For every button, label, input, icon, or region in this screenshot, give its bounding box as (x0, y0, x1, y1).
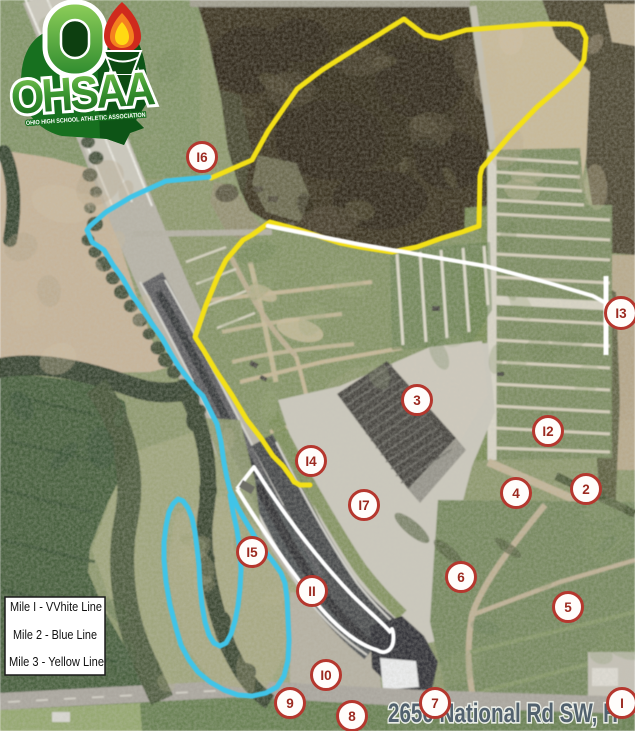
svg-text:I7: I7 (358, 498, 369, 513)
svg-text:Mile 3 - Yellow Line: Mile 3 - Yellow Line (9, 655, 104, 669)
svg-text:Mile I - VVhite Line: Mile I - VVhite Line (10, 600, 102, 614)
svg-text:I4: I4 (305, 454, 317, 469)
svg-text:9: 9 (286, 696, 294, 711)
svg-text:I6: I6 (196, 150, 208, 165)
svg-text:I3: I3 (615, 306, 627, 321)
svg-text:5: 5 (564, 600, 572, 615)
svg-text:I: I (620, 696, 624, 711)
svg-text:2: 2 (582, 482, 590, 497)
svg-text:7: 7 (431, 696, 439, 711)
svg-text:3: 3 (413, 393, 421, 408)
svg-text:I0: I0 (320, 668, 331, 683)
svg-text:I2: I2 (542, 424, 553, 439)
svg-text:6: 6 (457, 570, 465, 585)
svg-text:I5: I5 (246, 545, 258, 560)
svg-text:8: 8 (348, 709, 356, 724)
svg-text:Mile 2 - Blue Line: Mile 2 - Blue Line (13, 628, 97, 642)
svg-text:4: 4 (512, 486, 520, 501)
svg-text:II: II (308, 584, 316, 599)
